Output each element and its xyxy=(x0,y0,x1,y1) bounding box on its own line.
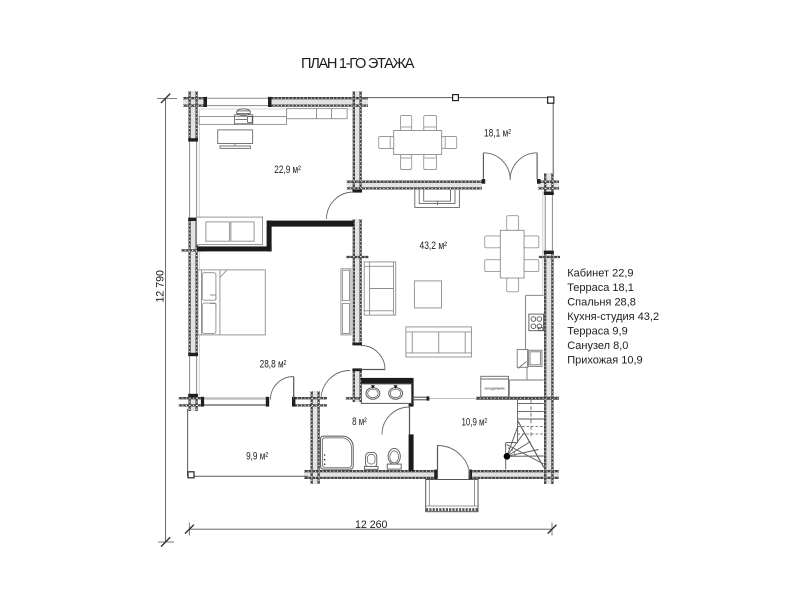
svg-text:холодильник: холодильник xyxy=(485,386,506,390)
svg-text:22,9 м²: 22,9 м² xyxy=(274,164,301,176)
svg-text:Санузел 8,0: Санузел 8,0 xyxy=(567,340,628,352)
svg-text:Спальня 28,8: Спальня 28,8 xyxy=(567,296,636,308)
svg-text:12 790: 12 790 xyxy=(155,270,167,303)
svg-text:9,9 м²: 9,9 м² xyxy=(246,450,268,462)
svg-text:12 260: 12 260 xyxy=(355,519,388,531)
svg-text:Терраса 18,1: Терраса 18,1 xyxy=(567,282,634,294)
svg-text:18,1 м²: 18,1 м² xyxy=(484,127,511,139)
svg-text:Кухня-студия 43,2: Кухня-студия 43,2 xyxy=(567,311,659,323)
svg-text:Терраса 9,9: Терраса 9,9 xyxy=(567,325,628,337)
svg-text:8 м²: 8 м² xyxy=(352,416,367,428)
svg-text:ПЛАН 1-ГО ЭТАЖА: ПЛАН 1-ГО ЭТАЖА xyxy=(301,56,415,72)
svg-text:Прихожая 10,9: Прихожая 10,9 xyxy=(567,354,642,366)
svg-text:10,9 м²: 10,9 м² xyxy=(462,416,488,428)
svg-text:Кабинет 22,9: Кабинет 22,9 xyxy=(567,267,633,279)
svg-text:43,2 м²: 43,2 м² xyxy=(420,240,448,252)
svg-text:28,8 м²: 28,8 м² xyxy=(260,359,287,371)
